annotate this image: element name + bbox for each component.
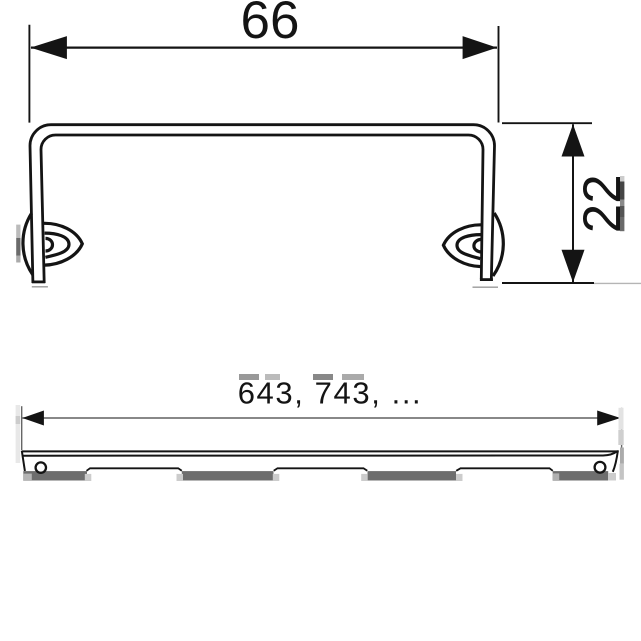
svg-text:66: 66: [241, 0, 300, 50]
svg-text:643, 743, ...: 643, 743, ...: [238, 375, 423, 410]
